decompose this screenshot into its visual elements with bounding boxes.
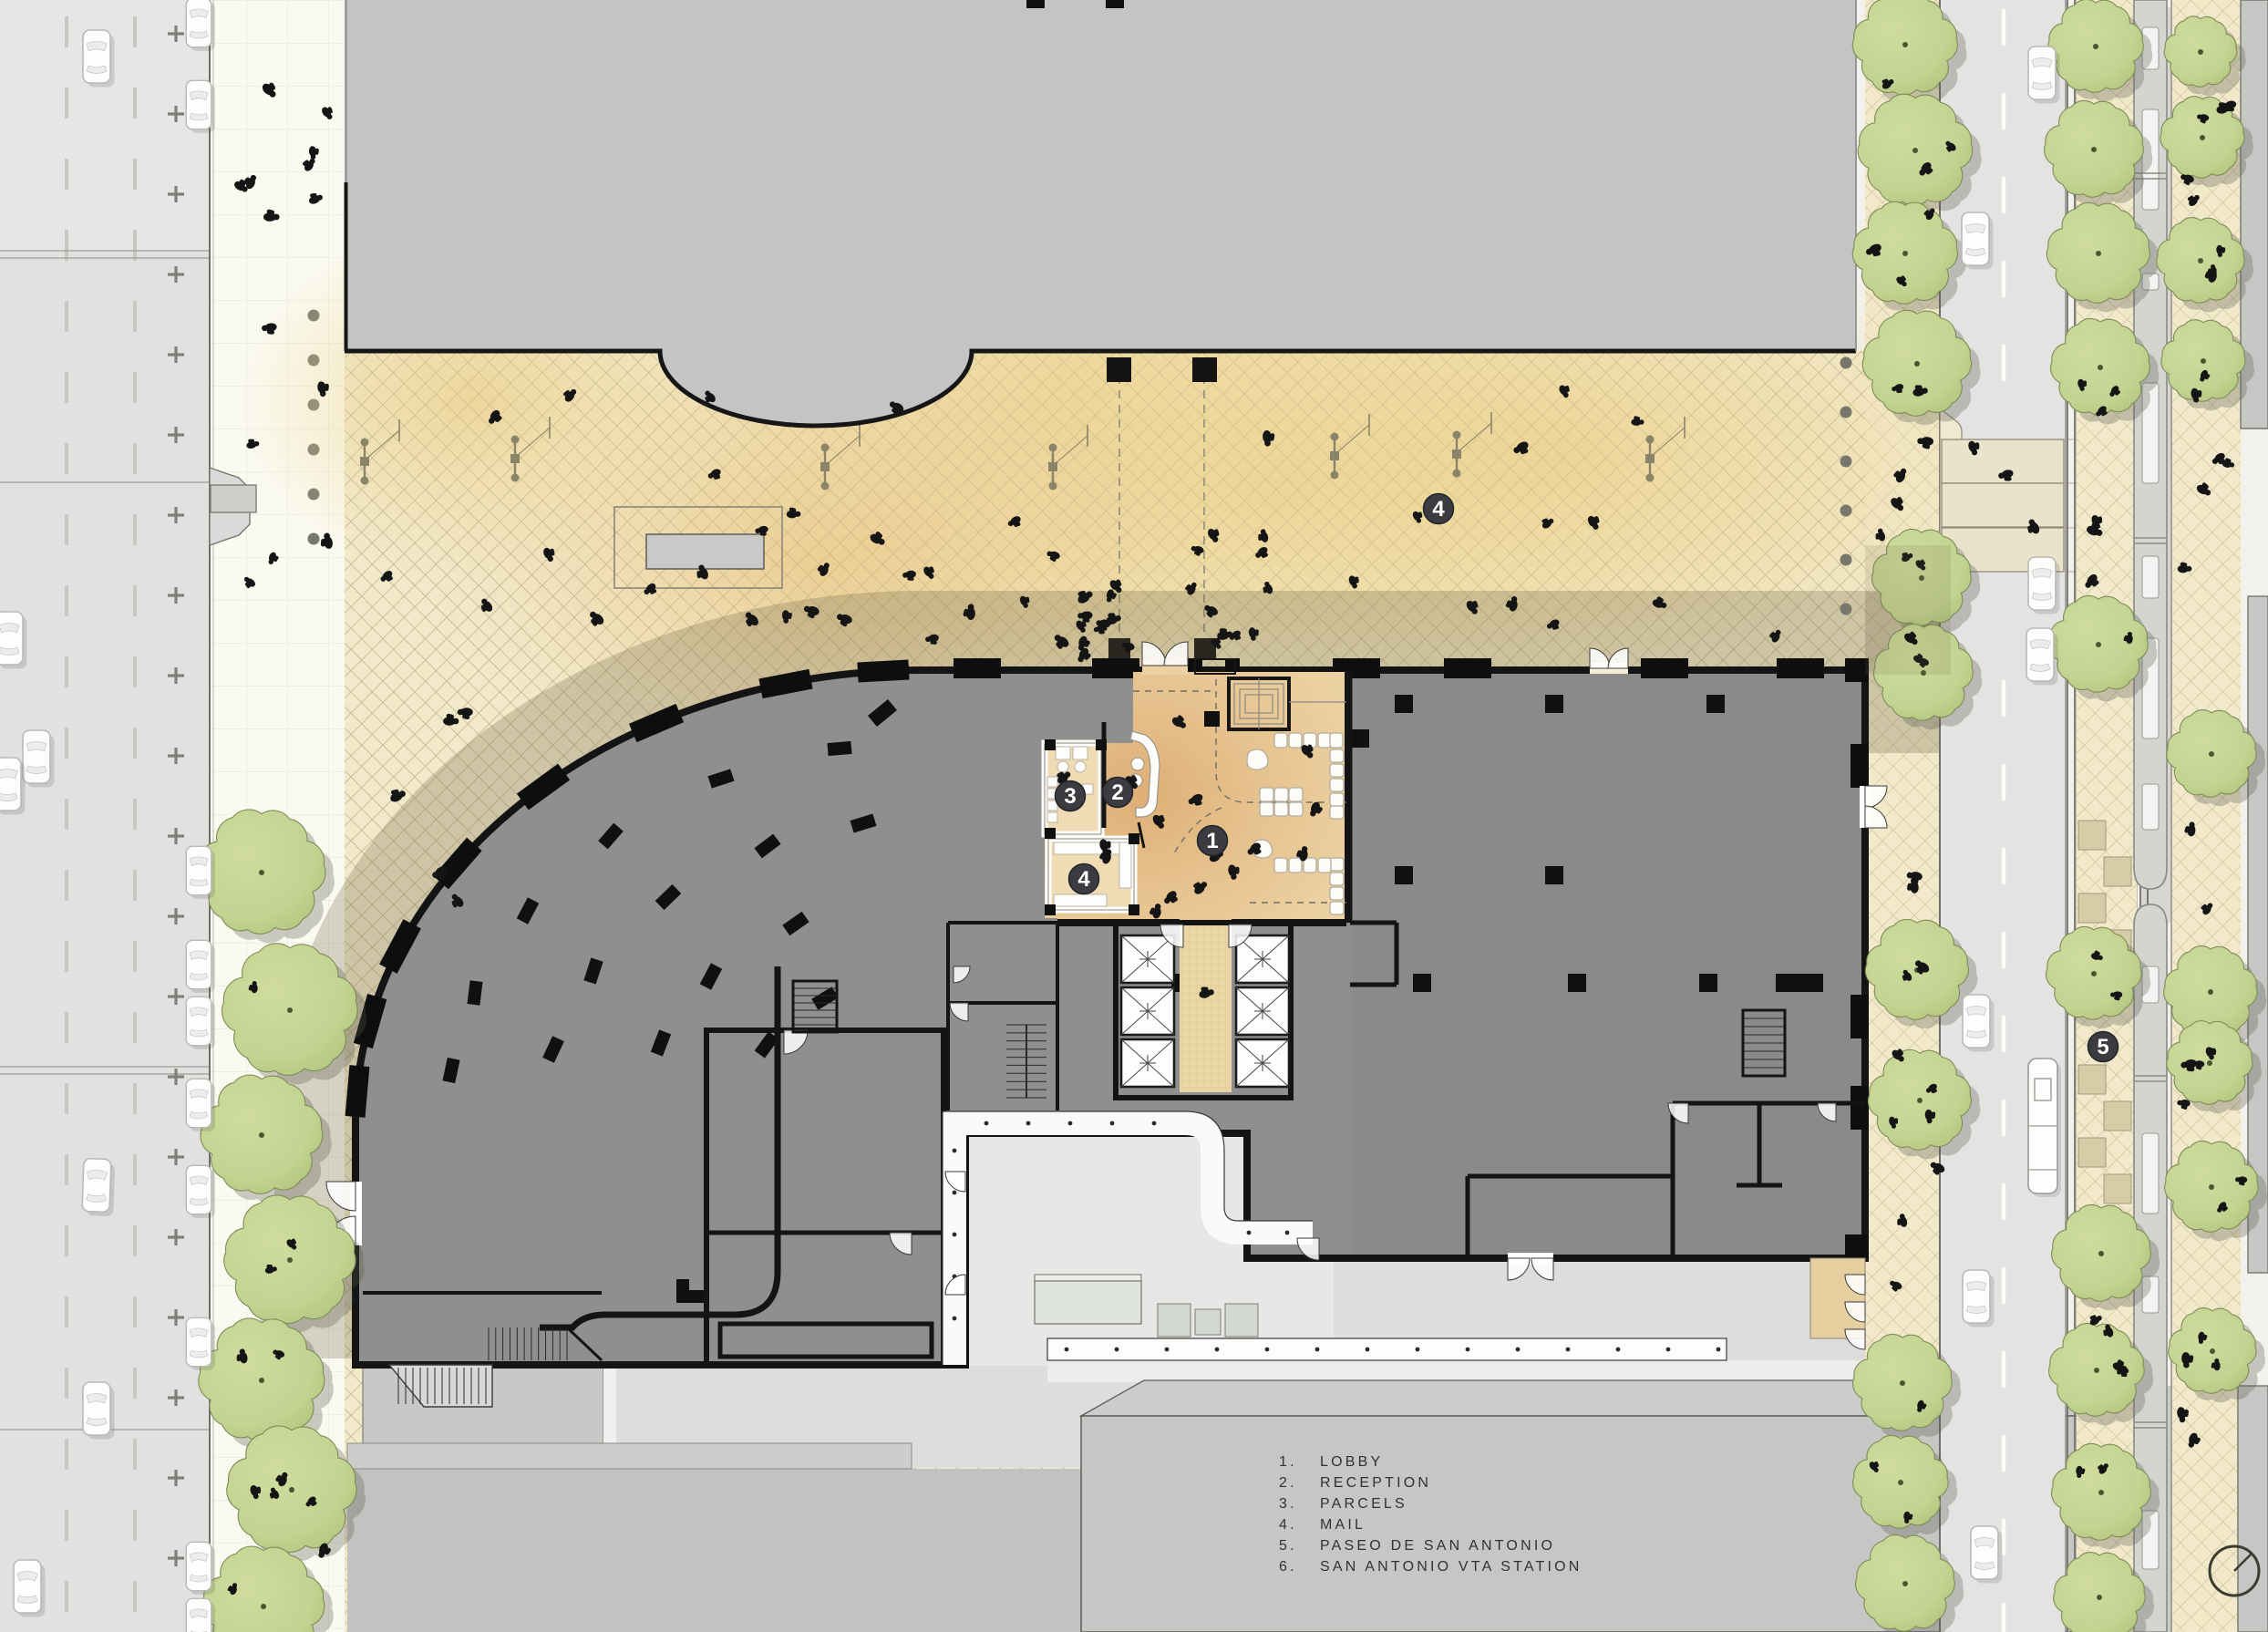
svg-text:3.: 3.: [1279, 1496, 1297, 1512]
svg-text:5.: 5.: [1279, 1538, 1297, 1554]
svg-text:PASEO DE SAN ANTONIO: PASEO DE SAN ANTONIO: [1320, 1538, 1555, 1554]
svg-text:PARCELS: PARCELS: [1320, 1496, 1407, 1512]
svg-text:2: 2: [1111, 780, 1123, 805]
svg-text:RECEPTION: RECEPTION: [1320, 1475, 1431, 1491]
svg-text:6.: 6.: [1279, 1559, 1297, 1575]
svg-text:4.: 4.: [1279, 1517, 1297, 1533]
svg-text:4: 4: [1077, 867, 1090, 892]
svg-text:2.: 2.: [1279, 1475, 1297, 1491]
svg-text:4: 4: [1432, 497, 1445, 522]
svg-text:1.: 1.: [1279, 1454, 1297, 1470]
svg-text:5: 5: [2097, 1035, 2108, 1059]
svg-text:SAN ANTONIO VTA STATION: SAN ANTONIO VTA STATION: [1320, 1559, 1582, 1575]
svg-text:3: 3: [1064, 784, 1076, 809]
svg-text:LOBBY: LOBBY: [1320, 1454, 1383, 1470]
svg-text:1: 1: [1206, 829, 1218, 853]
svg-text:MAIL: MAIL: [1320, 1517, 1366, 1533]
